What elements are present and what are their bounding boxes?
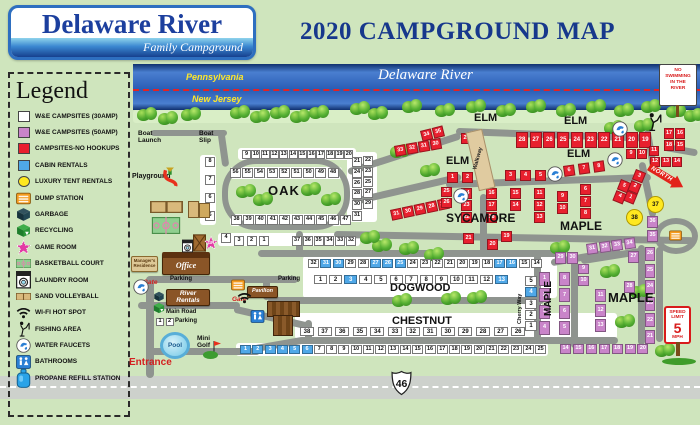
site-row-main-road: 12 xyxy=(156,318,174,326)
campsite-maple-right-22: 22 xyxy=(645,313,655,327)
legend-label-water-faucets: WATER FAUCETS xyxy=(35,342,90,349)
campsite-syc-6-7-8-7: 7 xyxy=(580,196,591,207)
site-row-elm-1-2: 12 xyxy=(447,172,473,183)
faucet-icon xyxy=(16,339,31,353)
site-row-syc-20: 20 xyxy=(487,239,498,250)
site-row-elm-3-4-5: 345 xyxy=(505,170,546,181)
campsite-oak-right-a-28: 28 xyxy=(352,189,362,199)
campsite-oak-right-a-30: 30 xyxy=(352,200,362,210)
campsite-oak-bottom-right-33: 33 xyxy=(335,236,345,246)
campsite-maple-9-10-10: 10 xyxy=(578,276,589,286)
garbage-icon xyxy=(153,291,165,302)
map-label-main-road: Main Road xyxy=(166,309,196,315)
campsite-maple-11-13-11: 11 xyxy=(595,289,606,302)
site-row-maple-29-30: 2930 xyxy=(555,252,578,264)
walkway-label: Walkway xyxy=(472,147,484,171)
legend-title: Legend xyxy=(16,78,124,105)
legend-item-laundry-room: LAUNDRY ROOM xyxy=(16,272,124,288)
campsite-chest-bottom-1: 1 xyxy=(240,345,251,354)
tree-icon xyxy=(586,99,606,114)
campsite-oak-inner-top-56: 56 xyxy=(230,168,241,178)
campsite-oak-outer-top-14: 14 xyxy=(289,150,298,159)
map-label-maple: MAPLE xyxy=(560,220,602,233)
star-icon xyxy=(16,240,31,254)
campsite-elm-9-10-10: 10 xyxy=(637,149,647,159)
map-label-dogwood: DOGWOOD xyxy=(390,283,451,295)
campsite-chest-bottom-4: 4 xyxy=(277,345,288,354)
recycling-icon xyxy=(16,224,31,238)
campsite-elm-3-4-5-4: 4 xyxy=(520,170,531,181)
campsite-chest-bottom-17: 17 xyxy=(437,345,448,354)
campsite-oak-inner-top-53: 53 xyxy=(267,168,278,178)
legend-item-game-room: GAME ROOM xyxy=(16,239,124,255)
campsite-elm-nw-b-33: 33 xyxy=(394,144,407,157)
campsite-oak-outer-top-11: 11 xyxy=(261,150,270,159)
campsite-cherry-1: 1 xyxy=(525,321,537,331)
campsite-oak-inner-bottom-41: 41 xyxy=(267,215,278,225)
legend-label-fishing-area: FISHING AREA xyxy=(35,326,81,333)
campsite-oak-inner-top-52: 52 xyxy=(279,168,290,178)
campsite-chest-bottom-6: 6 xyxy=(302,345,313,354)
map-label-oak: OAK xyxy=(268,184,300,198)
campsite-maple-bottom-19: 19 xyxy=(625,344,636,354)
campsite-maple-8-5-8: 8 xyxy=(559,272,570,286)
campsite-elm-18-15-15: 15 xyxy=(675,140,685,151)
campsite-chest-bottom-7: 7 xyxy=(314,345,325,354)
legend-item-basketball-court: BASKETBALL COURT xyxy=(16,256,124,272)
no-swimming-sign: NO SWIMMING IN THE RIVER xyxy=(659,64,697,106)
legend-panel: Legend W&E CAMPSITES (30AMP)W&E CAMPSITE… xyxy=(8,72,130,417)
site-row-oak-inner-bottom: 38394041424344454647 xyxy=(231,215,351,225)
site-row-maple-27: 27 xyxy=(628,251,639,263)
campsite-maple-8-5-5: 5 xyxy=(559,321,570,335)
campsite-elm-top-25: 25 xyxy=(557,132,569,148)
campsite-oak-outer-top-19: 19 xyxy=(335,150,344,159)
campsite-oak-inner-bottom-45: 45 xyxy=(316,215,327,225)
fisherman-icon xyxy=(16,322,31,336)
campsite-cherry-5: 5 xyxy=(525,276,537,286)
tree-icon xyxy=(402,99,422,114)
site-row-elm-17-16: 1716 xyxy=(664,128,685,139)
campsite-dog-bottom-11: 11 xyxy=(465,275,478,284)
legend-label-dump-station: DUMP STATION xyxy=(35,195,83,202)
map-label-maple: MAPLE xyxy=(608,291,654,305)
site-row-elm-9-10: 910 xyxy=(626,149,647,159)
campsite-oak-bottom-right-37: 37 xyxy=(292,236,302,246)
campsite-maple-1-4-4: 4 xyxy=(539,321,550,335)
campsite-oak-inner-bottom-44: 44 xyxy=(304,215,315,225)
tree-icon xyxy=(614,103,634,118)
campsite-chest-bottom-19: 19 xyxy=(461,345,472,354)
campsite-elm-9-10-9: 9 xyxy=(626,149,636,159)
campsite-maple-11-13-13: 13 xyxy=(595,319,606,332)
campsite-elm-17-16-17: 17 xyxy=(664,128,674,139)
campsite-maple-11-13-12: 12 xyxy=(595,304,606,317)
game-room-label: GR xyxy=(204,240,218,245)
legend-label-cabin-rentals: CABIN RENTALS xyxy=(35,162,88,169)
campsite-dog-top-29: 29 xyxy=(345,259,356,268)
legend-item-bathrooms: BATHROOMS xyxy=(16,354,124,370)
page-title: 2020 CAMPGROUND MAP xyxy=(300,18,600,46)
campsite-syc-21-21: 21 xyxy=(463,233,474,244)
pavilion-building-icon xyxy=(267,301,300,336)
campsite-syc-16-17-18-16: 16 xyxy=(486,188,497,199)
tree-icon xyxy=(350,101,370,116)
campsite-maple-31-34-33: 33 xyxy=(611,239,623,251)
campsite-chest-bottom-25: 25 xyxy=(535,345,546,354)
map-label-cherry-way: Cherry Way xyxy=(518,294,524,324)
campsite-chest-top-30: 30 xyxy=(441,327,455,336)
route-46-shield: 46 xyxy=(390,370,413,396)
luxury-tent-37: 37 xyxy=(647,196,664,213)
campsite-oak-inner-bottom-38: 38 xyxy=(231,215,242,225)
map-label-elm: ELM xyxy=(564,116,587,128)
site-row-elm-6-7-8: 678 xyxy=(563,160,605,177)
campsite-dog-bottom-3: 3 xyxy=(344,275,357,284)
campsite-oak-right-a-26: 26 xyxy=(352,178,362,188)
campsite-oak-inner-top-51: 51 xyxy=(291,168,302,178)
campsite-syc-15-14-15: 15 xyxy=(510,188,521,199)
tree-icon xyxy=(684,108,700,123)
campsite-oak-inner-top-55: 55 xyxy=(242,168,253,178)
campsite-oak-bottom-right-35: 35 xyxy=(314,236,324,246)
campsite-maple-right-26: 26 xyxy=(645,247,655,261)
campsite-oak-right-b-25: 25 xyxy=(363,177,373,187)
campsite-elm-6-7-8-6: 6 xyxy=(563,164,575,176)
campsite-dog-top-24: 24 xyxy=(407,259,418,268)
campsite-syc-arc-29: 29 xyxy=(413,203,426,216)
campsite-chest-bottom-8: 8 xyxy=(326,345,337,354)
legend-label-garbage: GARBAGE xyxy=(35,211,68,218)
tree-icon xyxy=(368,106,388,121)
tree-icon xyxy=(321,192,341,207)
campsite-syc-25-26-26: 26 xyxy=(441,198,452,208)
tree-icon xyxy=(655,343,675,358)
luxury-tent-38: 38 xyxy=(626,209,643,226)
site-row-syc-19: 19 xyxy=(501,231,512,242)
legend-item-cabin-rentals: CABIN RENTALS xyxy=(16,157,124,173)
campsite-elm-top-23: 23 xyxy=(585,132,597,148)
campsite-oak-outer-top-18: 18 xyxy=(326,150,335,159)
campsite-elm-nw-b-31: 31 xyxy=(418,140,431,153)
site-blue-icon xyxy=(16,158,31,172)
campsite-dog-top-15: 15 xyxy=(519,259,530,268)
road-segment xyxy=(151,130,227,136)
site-row-chest-top: 38373635343332313029282726 xyxy=(300,327,525,336)
site-red-icon xyxy=(16,142,31,156)
map-label-entrance: Entrance xyxy=(129,358,172,369)
campsite-main-road-2: 2 xyxy=(166,318,174,326)
campsite-oak-right-b-23: 23 xyxy=(363,167,373,177)
tree-icon xyxy=(399,241,419,256)
basketball-icon xyxy=(16,257,31,271)
garbage-icon xyxy=(16,208,31,222)
campsite-oak-inner-top-48: 48 xyxy=(328,168,339,178)
campsite-syc-25-26-25: 25 xyxy=(441,187,452,197)
site-row-maple-36-35: 3635 xyxy=(647,216,658,242)
campsite-elm-top-28: 28 xyxy=(516,132,528,148)
map-label-parking: Parking xyxy=(170,276,192,282)
campsite-elm-18-15-18: 18 xyxy=(664,140,674,151)
campsite-dog-top-30: 30 xyxy=(333,259,344,268)
tree-icon xyxy=(392,293,412,308)
campsite-dog-top-21: 21 xyxy=(444,259,455,268)
logo-subtitle: Family Campground xyxy=(143,40,243,55)
campsite-elm-11-11: 11 xyxy=(649,146,659,156)
legend-label-w-e-campsites-30amp: W&E CAMPSITES (30AMP) xyxy=(35,113,118,120)
wifi-icon xyxy=(16,306,31,320)
legend-label-wi-fi-hot-spot: WI-FI HOT SPOT xyxy=(35,309,86,316)
site-row-oak-bottom-right: 373635343332 xyxy=(292,236,356,246)
campsite-elm-top-27: 27 xyxy=(530,132,542,148)
campsite-syc-6-7-8-8: 8 xyxy=(580,208,591,219)
campsite-oak-inner-bottom-47: 47 xyxy=(340,215,351,225)
tree-icon xyxy=(526,99,546,114)
campsite-elm-top-24: 24 xyxy=(571,132,583,148)
campsite-maple-31-34-32: 32 xyxy=(598,241,610,253)
site-row-oak-outer-top: 91011121314151617181920 xyxy=(242,150,353,159)
tree-icon xyxy=(309,105,329,120)
tree-icon xyxy=(230,105,250,120)
campsite-dog-top-20: 20 xyxy=(457,259,468,268)
campsite-oak-bottom-left-2: 2 xyxy=(247,236,257,246)
map-label-boat-launch: Boat Launch xyxy=(138,130,161,144)
campsite-chest-bottom-13: 13 xyxy=(388,345,399,354)
campsite-elm-3-4-5-5: 5 xyxy=(535,170,546,181)
campsite-oak-right-a-21: 21 xyxy=(352,157,362,167)
volleyball-icon xyxy=(16,289,31,303)
site-row-cherry: 54321 xyxy=(525,276,537,331)
road-segment xyxy=(218,132,230,167)
campsite-oak-bottom-right-32: 32 xyxy=(346,236,356,246)
campsite-maple-right-21: 21 xyxy=(645,330,655,344)
legend-label-basketball-court: BASKETBALL COURT xyxy=(35,260,104,267)
campsite-oak-4-4: 4 xyxy=(221,233,231,243)
site-row-maple-bottom: 14151617181920 xyxy=(560,344,648,354)
map-label-chestnut: CHESTNUT xyxy=(392,316,452,328)
campsite-chest-bottom-16: 16 xyxy=(425,345,436,354)
site-row-maple-9-10: 910 xyxy=(578,264,589,286)
campsite-chest-bottom-2: 2 xyxy=(252,345,263,354)
legend-item-garbage: GARBAGE xyxy=(16,206,124,222)
campsite-oak-bottom-right-34: 34 xyxy=(324,236,334,246)
campsite-chest-top-36: 36 xyxy=(335,327,349,336)
site-row-elm-11: 11 xyxy=(649,146,659,156)
campsite-syc-6-7-8-6: 6 xyxy=(580,184,591,195)
site-row-elm-12-13-14: 121314 xyxy=(650,157,682,167)
road-segment xyxy=(571,256,578,348)
campsite-oak-outer-top-12: 12 xyxy=(270,150,279,159)
campsite-oak-outer-top-15: 15 xyxy=(298,150,307,159)
campsite-elm-12-13-14-13: 13 xyxy=(661,157,671,167)
campsite-chest-top-31: 31 xyxy=(423,327,437,336)
campsite-maple-36-35-35: 35 xyxy=(647,230,658,242)
state-border-line xyxy=(133,89,700,91)
site-row-oak-bottom-left: 321 xyxy=(234,236,269,246)
campsite-dog-bottom-12: 12 xyxy=(480,275,493,284)
state-label-pennsylvania: Pennsylvania xyxy=(186,72,244,82)
campsite-chest-top-35: 35 xyxy=(353,327,367,336)
tree-icon xyxy=(270,105,290,120)
site-row-syc-9-10: 910 xyxy=(557,191,568,214)
site-pink-icon xyxy=(16,126,31,140)
faucet-icon xyxy=(547,166,563,182)
campsite-cherry-4: 4 xyxy=(525,287,537,297)
campsite-elm-3-4-5-3: 3 xyxy=(505,170,516,181)
state-label-new-jersey: New Jersey xyxy=(192,94,242,104)
tree-icon xyxy=(360,230,380,245)
site-white-icon xyxy=(16,109,31,123)
legend-item-water-faucets: WATER FAUCETS xyxy=(16,337,124,353)
sign-manager-s-residence: Manager's Residence xyxy=(131,256,158,272)
campsite-chest-bottom-20: 20 xyxy=(474,345,485,354)
campsite-dog-top-16: 16 xyxy=(506,259,517,268)
basketball-icon xyxy=(148,217,184,234)
campsite-maple-8-5-6: 6 xyxy=(559,305,570,319)
speed-limit-sign: SPEEDLIMIT5MPH xyxy=(664,306,691,344)
campsite-dog-bottom-2: 2 xyxy=(329,275,342,284)
campsite-chest-bottom-9: 9 xyxy=(338,345,349,354)
legend-label-campsites-no-hookups: CAMPSITES-NO HOOKUPS xyxy=(35,145,120,152)
campsite-chest-bottom-10: 10 xyxy=(351,345,362,354)
campsite-dog-top-17: 17 xyxy=(494,259,505,268)
site-row-elm-top: 28272625242322212019 xyxy=(516,132,651,148)
campsite-oak-outer-top-10: 10 xyxy=(251,150,260,159)
fisherman-icon xyxy=(645,111,663,134)
campsite-maple-36-35-36: 36 xyxy=(647,216,658,228)
map-label-sycamore: SYCAMORE xyxy=(446,212,515,225)
volleyball-icon xyxy=(150,201,183,213)
campsite-oak-left-8: 8 xyxy=(205,157,215,167)
campsite-chest-bottom-22: 22 xyxy=(498,345,509,354)
campsite-maple-29-30-30: 30 xyxy=(567,252,578,264)
campsite-oak-right-a-31: 31 xyxy=(352,211,362,221)
campsite-dog-top-19: 19 xyxy=(469,259,480,268)
campsite-syc-11-12-13-13: 13 xyxy=(534,212,545,223)
map-label-parking: Parking xyxy=(175,318,197,324)
campsite-oak-outer-top-13: 13 xyxy=(279,150,288,159)
campsite-oak-left-7: 7 xyxy=(205,175,215,185)
river-label: Delaware River xyxy=(378,67,473,84)
campsite-chest-bottom-15: 15 xyxy=(412,345,423,354)
bathroom-icon xyxy=(250,310,265,323)
legend-items: W&E CAMPSITES (30AMP)W&E CAMPSITES (50AM… xyxy=(16,108,124,387)
map-label-maple: MAPLE xyxy=(544,281,555,316)
campsite-oak-bottom-left-3: 3 xyxy=(234,236,244,246)
campsite-syc-11-12-13-12: 12 xyxy=(534,200,545,211)
campsite-syc-16-17-18-17: 17 xyxy=(486,200,497,211)
campsite-cherry-2: 2 xyxy=(525,310,537,320)
campsite-syc-arc-31: 31 xyxy=(390,208,403,221)
campsite-elm-17-16-16: 16 xyxy=(675,128,685,139)
tree-icon xyxy=(467,290,487,305)
campsite-maple-bottom-16: 16 xyxy=(586,344,597,354)
laundry-icon xyxy=(182,239,193,253)
wifi-icon xyxy=(237,291,252,304)
dump-icon xyxy=(231,278,245,292)
legend-label-bathrooms: BATHROOMS xyxy=(35,358,77,365)
campsite-chest-bottom-3: 3 xyxy=(265,345,276,354)
campsite-chest-top-34: 34 xyxy=(370,327,384,336)
tree-icon xyxy=(250,109,270,124)
site-row-syc-6-7-8: 678 xyxy=(580,184,591,219)
campsite-dog-top-32: 32 xyxy=(308,259,319,268)
legend-item-sand-volleyball: SAND VOLLEYBALL xyxy=(16,288,124,304)
campsite-oak-inner-bottom-46: 46 xyxy=(328,215,339,225)
campsite-dog-bottom-13: 13 xyxy=(495,275,508,284)
shed-icon xyxy=(188,201,210,218)
map-label-elm: ELM xyxy=(446,156,469,168)
campsite-syc-15-14-14: 14 xyxy=(510,200,521,211)
game-room-star-icon: GR xyxy=(204,236,218,250)
site-row-oak-inner-top: 565554535251504948 xyxy=(230,168,339,178)
campsite-elm-1-2-2: 2 xyxy=(462,172,473,183)
legend-item-fishing-area: FISHING AREA xyxy=(16,321,124,337)
campsite-maple-bottom-18: 18 xyxy=(612,344,623,354)
mini-golf-green xyxy=(203,351,218,359)
site-row-dog-top: 32313029282726252423222120191817161514 xyxy=(308,259,542,268)
legend-label-sand-volleyball: SAND VOLLEYBALL xyxy=(35,293,99,300)
tree-icon xyxy=(420,163,440,178)
site-row-syc-11-12-13: 111213 xyxy=(534,188,545,223)
legend-item-w-e-campsites-30amp: W&E CAMPSITES (30AMP) xyxy=(16,108,124,124)
legend-label-laundry-room: LAUNDRY ROOM xyxy=(35,277,88,284)
campsite-maple-31-34-31: 31 xyxy=(586,242,598,254)
campsite-maple-8-5-7: 7 xyxy=(559,288,570,302)
campsite-elm-12-13-14-14: 14 xyxy=(672,157,682,167)
campsite-maple-bottom-17: 17 xyxy=(599,344,610,354)
legend-item-dump-station: DUMP STATION xyxy=(16,190,124,206)
campsite-oak-right-b-29: 29 xyxy=(363,199,373,209)
campsite-dog-top-22: 22 xyxy=(432,259,443,268)
campsite-maple-bottom-14: 14 xyxy=(560,344,571,354)
tree-icon xyxy=(615,314,635,329)
campsite-oak-inner-top-50: 50 xyxy=(303,168,314,178)
campsite-dog-top-18: 18 xyxy=(482,259,493,268)
site-row-syc-21: 21 xyxy=(463,233,474,244)
campsite-oak-outer-top-16: 16 xyxy=(307,150,316,159)
campsite-oak-inner-top-49: 49 xyxy=(315,168,326,178)
campsite-syc-arc-30: 30 xyxy=(402,205,415,218)
campsite-dog-bottom-1: 1 xyxy=(314,275,327,284)
faucet-icon xyxy=(133,279,149,295)
faucet-icon xyxy=(607,152,623,168)
campsite-maple-right-25: 25 xyxy=(645,264,655,278)
campsite-dog-top-25: 25 xyxy=(395,259,406,268)
faucet-icon xyxy=(453,188,469,204)
campsite-dog-bottom-10: 10 xyxy=(450,275,463,284)
campsite-syc-arc-28: 28 xyxy=(425,200,438,213)
site-row-elm-18-15: 1815 xyxy=(664,140,685,151)
legend-label-recycling: RECYCLING xyxy=(35,227,73,234)
campsite-dog-top-14: 14 xyxy=(531,259,542,268)
campsite-chest-bottom-24: 24 xyxy=(523,345,534,354)
recycling-icon xyxy=(153,302,165,314)
campsite-syc-9-10-10: 10 xyxy=(557,203,568,214)
campsite-oak-inner-bottom-39: 39 xyxy=(243,215,254,225)
campsite-syc-20-20: 20 xyxy=(487,239,498,250)
campsite-elm-nw-b-30: 30 xyxy=(429,138,442,151)
campsite-elm-top-26: 26 xyxy=(543,132,555,148)
campsite-maple-29-30-29: 29 xyxy=(555,252,566,264)
circle-yellow-icon xyxy=(16,175,31,189)
campsite-elm-nw-b-32: 32 xyxy=(406,142,419,155)
campsite-chest-top-27: 27 xyxy=(494,327,508,336)
legend-item-recycling: RECYCLING xyxy=(16,223,124,239)
dump-icon xyxy=(669,229,682,242)
site-row-elm-nw-b: 33323130 xyxy=(394,138,442,157)
campsite-chest-bottom-23: 23 xyxy=(511,345,522,354)
